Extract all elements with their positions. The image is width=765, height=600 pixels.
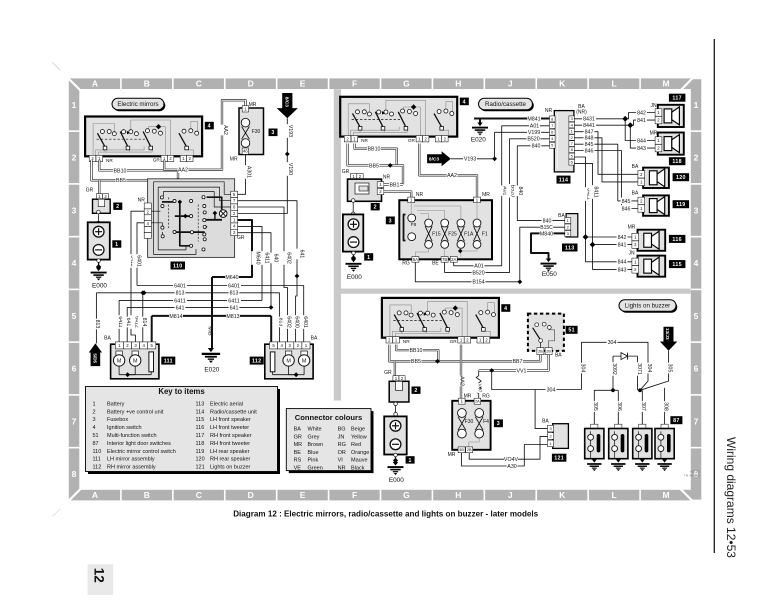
svg-text:BE: BE — [432, 260, 439, 266]
svg-text:814: 814 — [141, 318, 147, 327]
svg-text:Electric mirror control switch: Electric mirror control switch — [107, 449, 176, 455]
svg-text:Multi-function switch: Multi-function switch — [107, 433, 157, 439]
svg-text:H32 162: H32 162 — [690, 470, 700, 474]
svg-text:6411: 6411 — [264, 252, 270, 263]
svg-text:E020: E020 — [204, 367, 219, 374]
svg-text:GR: GR — [408, 138, 416, 143]
svg-text:841: 841 — [637, 118, 646, 124]
svg-text:C: C — [196, 490, 202, 500]
svg-text:GR: GR — [237, 235, 245, 241]
svg-text:12: 12 — [92, 568, 107, 583]
svg-text:LH mirror assembly: LH mirror assembly — [107, 457, 155, 463]
svg-text:J: J — [508, 79, 513, 89]
svg-text:A301: A301 — [245, 166, 251, 178]
svg-text:2: 2 — [116, 204, 119, 210]
svg-text:M/B: M/B — [206, 326, 212, 336]
svg-text:5B: 5B — [459, 448, 464, 452]
svg-text:2: 2 — [72, 153, 77, 163]
svg-text:3: 3 — [694, 205, 699, 215]
svg-text:E000: E000 — [92, 283, 107, 290]
svg-text:MR: MR — [249, 102, 257, 108]
svg-text:M: M — [302, 359, 307, 365]
svg-text:3: 3 — [93, 417, 96, 423]
svg-text:8411: 8411 — [592, 186, 598, 197]
svg-text:Radio/cassette: Radio/cassette — [485, 101, 526, 108]
svg-text:V193: V193 — [287, 125, 293, 137]
svg-text:G: G — [403, 79, 410, 89]
svg-text:GR: GR — [384, 370, 392, 376]
svg-text:115: 115 — [672, 262, 681, 268]
svg-text:641: 641 — [176, 305, 185, 311]
svg-text:V199: V199 — [528, 130, 540, 136]
svg-text:M640: M640 — [225, 275, 238, 281]
svg-text:13/J3: 13/J3 — [665, 328, 670, 340]
svg-text:4: 4 — [694, 258, 699, 268]
svg-text:Connector colours: Connector colours — [295, 413, 363, 422]
svg-text:BB10: BB10 — [368, 147, 381, 153]
svg-text:813: 813 — [277, 318, 283, 327]
svg-text:841: 841 — [618, 243, 627, 249]
svg-text:B15C: B15C — [540, 225, 553, 231]
svg-text:111: 111 — [164, 359, 173, 365]
svg-text:Electric mirrors: Electric mirrors — [117, 101, 158, 108]
svg-text:Pink: Pink — [308, 458, 319, 464]
svg-text:AA2: AA2 — [222, 125, 228, 135]
svg-text:2: 2 — [374, 205, 377, 211]
svg-text:304: 304 — [608, 340, 617, 346]
svg-text:LH rear speaker: LH rear speaker — [210, 449, 250, 455]
svg-text:VI: VI — [338, 458, 344, 464]
svg-text:7: 7 — [694, 416, 699, 426]
svg-text:F8: F8 — [411, 222, 417, 228]
svg-text:6402: 6402 — [285, 316, 291, 328]
svg-text:Lights on buzzer: Lights on buzzer — [210, 465, 251, 471]
svg-text:MR: MR — [230, 157, 238, 163]
svg-text:JN: JN — [628, 251, 635, 257]
svg-text:119: 119 — [196, 449, 205, 455]
svg-text:RH front tweeter: RH front tweeter — [210, 441, 250, 447]
svg-text:846: 846 — [585, 148, 594, 154]
svg-text:RS: RS — [294, 458, 302, 464]
svg-text:E020: E020 — [471, 137, 486, 144]
svg-text:87: 87 — [93, 441, 99, 447]
svg-text:306: 306 — [616, 402, 622, 411]
svg-text:6402: 6402 — [285, 252, 291, 264]
svg-text:F1: F1 — [482, 232, 488, 238]
svg-text:Wiring diagrams 12•53: Wiring diagrams 12•53 — [724, 437, 738, 558]
svg-text:BB5: BB5 — [369, 163, 379, 169]
svg-text:6401: 6401 — [228, 283, 240, 289]
svg-text:E000: E000 — [347, 274, 362, 281]
svg-text:H: H — [455, 79, 461, 89]
svg-text:117: 117 — [196, 433, 205, 439]
svg-text:Key to items: Key to items — [158, 387, 205, 396]
svg-text:GR: GR — [153, 158, 161, 163]
svg-text:JN: JN — [338, 434, 345, 440]
svg-text:GR: GR — [294, 434, 302, 440]
svg-text:2B: 2B — [538, 349, 543, 353]
svg-text:51: 51 — [568, 328, 575, 334]
svg-text:1: 1 — [367, 255, 370, 261]
svg-text:NR: NR — [138, 198, 146, 204]
svg-text:B: B — [144, 490, 150, 500]
svg-text:6411: 6411 — [174, 298, 185, 304]
svg-text:121: 121 — [554, 456, 564, 462]
svg-text:BA: BA — [558, 213, 565, 219]
svg-text:BG: BG — [338, 427, 346, 433]
svg-text:840: 840 — [543, 218, 552, 224]
svg-text:B520: B520 — [472, 270, 484, 276]
svg-text:BB5: BB5 — [411, 359, 421, 365]
svg-text:(NR): (NR) — [576, 110, 587, 116]
svg-text:F1A: F1A — [464, 232, 474, 238]
svg-text:NR: NR — [361, 138, 368, 143]
svg-text:116: 116 — [672, 237, 681, 243]
svg-text:115: 115 — [196, 417, 205, 423]
svg-text:MR: MR — [294, 442, 303, 448]
svg-text:GR: GR — [342, 169, 350, 175]
svg-text:RH front speaker: RH front speaker — [210, 433, 252, 439]
svg-text:1: 1 — [72, 100, 77, 110]
svg-text:Interior light door switches: Interior light door switches — [107, 441, 171, 447]
svg-text:5: 5 — [694, 311, 699, 321]
svg-text:V193: V193 — [464, 157, 476, 163]
svg-text:Lights on buzzer: Lights on buzzer — [625, 303, 670, 310]
svg-text:JN: JN — [650, 103, 657, 109]
svg-text:304: 304 — [646, 364, 652, 373]
svg-text:Orange: Orange — [351, 450, 369, 456]
svg-text:Yellow: Yellow — [351, 434, 367, 440]
svg-text:843: 843 — [618, 267, 627, 273]
svg-text:RH mirror assembly: RH mirror assembly — [107, 465, 156, 471]
svg-text:Battery +ve control unit: Battery +ve control unit — [107, 409, 164, 415]
svg-text:8441: 8441 — [583, 123, 595, 129]
svg-text:Grey: Grey — [308, 434, 320, 440]
svg-text:305: 305 — [592, 402, 598, 411]
svg-text:M: M — [286, 359, 291, 365]
svg-text:A30: A30 — [507, 464, 516, 470]
svg-text:E: E — [300, 79, 306, 89]
svg-text:846: 846 — [622, 206, 631, 212]
svg-text:118: 118 — [672, 159, 681, 165]
svg-text:87: 87 — [673, 418, 680, 424]
svg-text:6401: 6401 — [302, 316, 308, 328]
svg-text:2A: 2A — [475, 400, 480, 404]
svg-text:A: A — [92, 490, 98, 500]
svg-text:3: 3 — [271, 130, 274, 136]
svg-text:1: 1 — [115, 242, 118, 248]
svg-text:B: B — [144, 79, 150, 89]
svg-text:RH rear speaker: RH rear speaker — [210, 457, 251, 463]
svg-text:M640: M640 — [254, 252, 260, 265]
svg-text:VO4V: VO4V — [504, 457, 519, 463]
svg-text:2: 2 — [93, 409, 96, 415]
svg-text:7: 7 — [72, 416, 77, 426]
svg-text:Ignition switch: Ignition switch — [107, 425, 142, 431]
svg-text:NR: NR — [383, 175, 391, 181]
svg-text:F: F — [352, 79, 357, 89]
svg-text:RG: RG — [482, 393, 490, 399]
svg-text:Green: Green — [308, 465, 323, 471]
svg-text:845: 845 — [622, 199, 631, 205]
svg-text:BB10: BB10 — [410, 348, 423, 354]
svg-text:D: D — [248, 79, 254, 89]
svg-text:3071: 3071 — [636, 363, 642, 375]
svg-text:114: 114 — [559, 178, 568, 184]
svg-text:BA: BA — [294, 427, 302, 433]
svg-text:7B: 7B — [442, 257, 447, 262]
svg-text:BA: BA — [104, 336, 111, 342]
svg-text:813: 813 — [230, 291, 239, 297]
svg-text:C: C — [196, 79, 202, 89]
svg-text:M840: M840 — [540, 231, 553, 237]
svg-text:304: 304 — [547, 387, 556, 393]
svg-text:M813: M813 — [226, 314, 239, 320]
svg-text:E: E — [300, 490, 306, 500]
svg-text:F15: F15 — [432, 232, 441, 238]
svg-text:8/C3: 8/C3 — [284, 97, 290, 107]
svg-text:46: 46 — [243, 149, 248, 154]
svg-text:GR: GR — [86, 188, 94, 194]
svg-text:MR: MR — [482, 192, 490, 198]
svg-text:OR: OR — [338, 450, 346, 456]
svg-text:GR: GR — [450, 339, 458, 344]
svg-text:A01: A01 — [530, 124, 539, 130]
svg-text:3: 3 — [389, 218, 392, 224]
svg-text:BB10: BB10 — [114, 168, 127, 174]
svg-text:Diagram 12 : Electric mirrors,: Diagram 12 : Electric mirrors, radio/cas… — [233, 510, 538, 519]
svg-text:D: D — [248, 490, 254, 500]
svg-text:White: White — [308, 427, 322, 433]
svg-text:NR: NR — [416, 192, 424, 198]
svg-text:4: 4 — [504, 306, 507, 312]
svg-text:110: 110 — [173, 263, 182, 269]
svg-text:NR: NR — [403, 339, 410, 344]
svg-text:5: 5 — [72, 311, 77, 321]
svg-text:8431: 8431 — [583, 117, 595, 123]
svg-text:A01: A01 — [474, 264, 483, 270]
svg-text:VE: VE — [294, 465, 302, 471]
svg-text:RG: RG — [402, 260, 410, 266]
svg-text:8/C3: 8/C3 — [429, 157, 439, 163]
svg-text:3: 3 — [72, 205, 77, 215]
svg-text:BB5: BB5 — [116, 178, 126, 184]
svg-text:121: 121 — [196, 465, 205, 471]
svg-text:51: 51 — [93, 433, 99, 439]
svg-text:304: 304 — [579, 364, 585, 373]
svg-text:2B: 2B — [467, 448, 472, 452]
svg-text:K: K — [559, 490, 566, 500]
svg-text:M841: M841 — [527, 116, 540, 122]
svg-text:Beige: Beige — [351, 427, 365, 433]
svg-text:M: M — [117, 359, 122, 365]
svg-text:6: 6 — [694, 364, 699, 374]
svg-text:Radio/cassette unit: Radio/cassette unit — [210, 409, 257, 415]
svg-text:H: H — [455, 490, 461, 500]
svg-text:K: K — [559, 79, 566, 89]
svg-text:6411: 6411 — [117, 316, 123, 327]
svg-text:B154: B154 — [472, 280, 484, 286]
svg-text:813: 813 — [94, 320, 100, 329]
svg-text:Electric aerial: Electric aerial — [210, 401, 243, 407]
svg-text:844: 844 — [618, 260, 627, 266]
svg-text:113: 113 — [196, 401, 205, 407]
svg-text:8: 8 — [72, 469, 77, 479]
svg-text:T.M. MA.8965: T.M. MA.8965 — [684, 474, 701, 478]
svg-text:BB1: BB1 — [389, 182, 399, 188]
svg-text:Blue: Blue — [308, 450, 319, 456]
svg-text:F4: F4 — [483, 419, 489, 425]
svg-text:6: 6 — [72, 364, 77, 374]
svg-text:NR: NR — [106, 158, 113, 163]
svg-text:1: 1 — [93, 401, 96, 407]
svg-text:120: 120 — [676, 175, 686, 181]
svg-text:BA: BA — [542, 418, 549, 424]
svg-text:Red: Red — [351, 442, 361, 448]
svg-text:2B: 2B — [546, 349, 551, 353]
svg-text:845: 845 — [585, 142, 594, 148]
svg-text:Fusebox: Fusebox — [107, 417, 128, 423]
svg-text:RG: RG — [338, 442, 346, 448]
svg-text:2: 2 — [694, 153, 699, 163]
svg-text:VV7: VV7 — [477, 384, 482, 393]
svg-text:4: 4 — [72, 258, 77, 268]
svg-text:2A: 2A — [451, 257, 456, 262]
svg-text:M: M — [133, 359, 138, 365]
svg-text:308: 308 — [662, 402, 668, 411]
svg-text:Mauve: Mauve — [351, 458, 368, 464]
svg-text:MR: MR — [650, 131, 658, 137]
svg-text:1: 1 — [408, 458, 411, 464]
svg-text:6401: 6401 — [174, 283, 186, 289]
svg-text:A: A — [92, 79, 98, 89]
svg-text:M: M — [662, 490, 669, 500]
svg-text:B520: B520 — [527, 137, 539, 143]
svg-text:Battery: Battery — [107, 401, 125, 407]
svg-text:842: 842 — [637, 110, 646, 116]
svg-text:F25: F25 — [448, 232, 457, 238]
svg-text:AA2: AA2 — [458, 376, 464, 386]
svg-text:F: F — [352, 490, 357, 500]
svg-text:6401: 6401 — [135, 255, 141, 267]
svg-text:4: 4 — [463, 99, 466, 105]
svg-text:813: 813 — [176, 291, 185, 297]
svg-text:M814: M814 — [169, 314, 182, 320]
svg-text:L: L — [612, 79, 617, 89]
svg-text:842: 842 — [618, 235, 627, 241]
svg-text:110: 110 — [93, 449, 102, 455]
svg-text:843: 843 — [637, 146, 646, 152]
svg-text:F30: F30 — [465, 419, 474, 425]
svg-text:113: 113 — [565, 245, 574, 251]
svg-text:641: 641 — [299, 250, 305, 259]
svg-text:840: 840 — [517, 186, 523, 195]
svg-text:BA: BA — [555, 352, 562, 358]
svg-text:848: 848 — [585, 136, 594, 142]
svg-text:Black: Black — [351, 465, 365, 471]
svg-text:E000: E000 — [389, 477, 404, 484]
svg-text:2: 2 — [414, 388, 417, 394]
svg-text:3092: 3092 — [611, 363, 617, 375]
svg-text:5/D5: 5/D5 — [93, 353, 98, 363]
svg-text:BA: BA — [632, 191, 639, 197]
svg-text:L: L — [612, 490, 617, 500]
svg-text:640: 640 — [273, 254, 279, 263]
svg-text:M: M — [662, 79, 669, 89]
svg-text:BA: BA — [311, 336, 318, 342]
svg-text:119: 119 — [676, 202, 685, 208]
svg-text:112: 112 — [252, 359, 261, 365]
svg-text:BA: BA — [632, 164, 639, 170]
svg-text:844: 844 — [637, 138, 646, 144]
svg-text:114: 114 — [196, 409, 205, 415]
svg-text:LH front tweeter: LH front tweeter — [210, 425, 249, 431]
svg-text:F30: F30 — [252, 129, 261, 135]
svg-text:840: 840 — [532, 144, 541, 150]
svg-text:V190: V190 — [287, 163, 293, 175]
svg-text:AA2: AA2 — [447, 173, 457, 179]
svg-text:G: G — [403, 490, 410, 500]
svg-text:MR: MR — [628, 225, 636, 231]
svg-text:117: 117 — [672, 96, 681, 102]
svg-text:6411: 6411 — [228, 298, 239, 304]
svg-text:3: 3 — [497, 421, 500, 427]
svg-text:305: 305 — [666, 364, 672, 373]
svg-text:307: 307 — [640, 402, 646, 411]
svg-text:118: 118 — [196, 441, 205, 447]
svg-text:120: 120 — [196, 457, 205, 463]
svg-text:6400: 6400 — [294, 316, 300, 328]
svg-text:E050: E050 — [542, 271, 557, 278]
svg-text:1: 1 — [694, 100, 699, 110]
svg-text:NR: NR — [545, 108, 553, 114]
svg-text:4: 4 — [208, 124, 211, 130]
svg-text:5A: 5A — [413, 257, 418, 262]
svg-text:116: 116 — [196, 425, 205, 431]
svg-text:VV1: VV1 — [516, 368, 526, 374]
svg-text:LH front speaker: LH front speaker — [210, 417, 251, 423]
svg-text:641: 641 — [125, 318, 131, 327]
svg-text:BB7: BB7 — [512, 359, 522, 365]
svg-text:111: 111 — [93, 457, 101, 463]
svg-text:NR: NR — [338, 465, 346, 471]
svg-text:4: 4 — [93, 425, 96, 431]
svg-text:BE: BE — [294, 450, 302, 456]
svg-text:112: 112 — [93, 465, 102, 471]
svg-text:641: 641 — [230, 305, 239, 311]
svg-text:Brown: Brown — [308, 442, 324, 448]
svg-text:MR: MR — [448, 452, 456, 458]
svg-text:AA2: AA2 — [178, 168, 188, 174]
svg-text:J: J — [508, 490, 513, 500]
